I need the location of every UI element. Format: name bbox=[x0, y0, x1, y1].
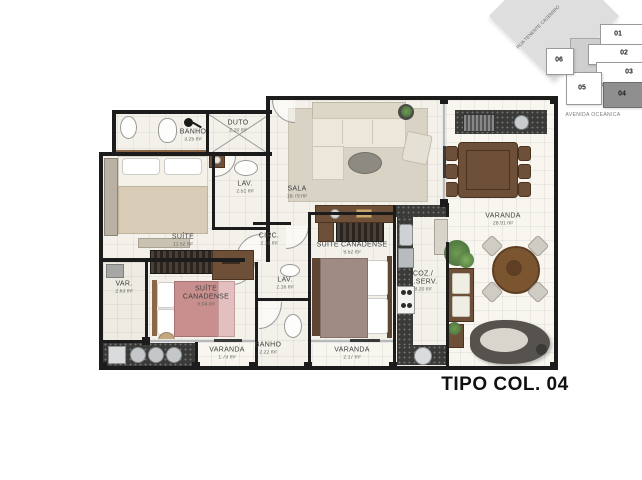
coffee-table bbox=[348, 152, 382, 174]
varanda-bench bbox=[448, 268, 474, 322]
room-label-suite-canadense-left: SUÍTE CANADENSE9.04 m² bbox=[180, 286, 232, 309]
wall bbox=[212, 156, 215, 230]
lav-sink bbox=[234, 160, 258, 176]
keyplan-unit-06-label: 06 bbox=[555, 57, 563, 64]
sofa-seat bbox=[312, 118, 406, 148]
wall bbox=[99, 258, 245, 262]
wall bbox=[99, 366, 558, 370]
canadense-center-bed bbox=[312, 256, 392, 338]
wall bbox=[145, 262, 148, 342]
ac-unit bbox=[106, 264, 124, 278]
room-label-varanda2: VARANDA2.17 m² bbox=[334, 347, 369, 362]
room-label-banho2: BANHO2.22 m² bbox=[255, 342, 281, 357]
column bbox=[440, 199, 448, 207]
room-label-banho1: BANHO3.25 m² bbox=[180, 129, 206, 144]
column bbox=[550, 362, 558, 370]
wall bbox=[253, 222, 291, 225]
kitchen-sink bbox=[399, 224, 413, 246]
wall bbox=[308, 212, 396, 215]
keyplan-unit-03 bbox=[596, 62, 642, 84]
column bbox=[99, 362, 107, 370]
wall bbox=[112, 152, 272, 156]
lav-sink bbox=[280, 264, 300, 277]
bathroom-sink bbox=[158, 118, 177, 143]
pillow bbox=[157, 282, 175, 308]
wall bbox=[266, 96, 558, 100]
duvet bbox=[320, 258, 368, 338]
cushion bbox=[452, 296, 470, 317]
room-label-varanda-grande: VARANDA28.91 m² bbox=[485, 213, 520, 228]
keyplan-unit-02-label: 02 bbox=[620, 50, 628, 57]
mask bbox=[97, 94, 269, 110]
toilet bbox=[284, 314, 302, 338]
column bbox=[304, 362, 312, 370]
dining-chair bbox=[445, 182, 458, 197]
dining-chair bbox=[445, 146, 458, 161]
dining-chair bbox=[445, 164, 458, 179]
floorplan-page: { "title": "TIPO COL. 04", "keyplan": { … bbox=[0, 0, 642, 480]
column bbox=[249, 362, 257, 370]
sofa-chaise bbox=[312, 146, 344, 180]
room-label-duto: DUTO2.10 m² bbox=[228, 120, 249, 135]
plant-icon bbox=[448, 322, 461, 335]
keyplan-unit-05-label: 05 bbox=[578, 85, 586, 92]
lounge-cushion bbox=[480, 328, 528, 352]
wall bbox=[554, 96, 558, 370]
room-label-suite-canadense-center: SUÍTE CANADENSE9.52 m² bbox=[317, 242, 388, 257]
column bbox=[389, 362, 397, 370]
room-label-circ: CIRC.2.13 m² bbox=[259, 233, 280, 248]
sliding-door-panel bbox=[214, 339, 242, 342]
wall bbox=[393, 205, 396, 366]
mask bbox=[95, 98, 112, 154]
plant-icon bbox=[401, 106, 412, 117]
counter-sink bbox=[130, 347, 146, 363]
round-table-center bbox=[506, 260, 522, 276]
wardrobe-slatted bbox=[336, 220, 384, 242]
blanket bbox=[118, 186, 208, 234]
keyplan-street-bottom: AVENIDA OCEÂNICA bbox=[551, 112, 634, 117]
toilet bbox=[120, 116, 137, 139]
grill-icon bbox=[463, 114, 495, 132]
room-label-suite: SUÍTE11.52 m² bbox=[171, 234, 194, 249]
room-label-varanda1: VARANDA1.73 m² bbox=[209, 347, 244, 362]
dining-chair bbox=[518, 164, 531, 179]
dining-chair bbox=[518, 146, 531, 161]
counter-square bbox=[108, 346, 126, 364]
wall bbox=[112, 110, 272, 114]
stool bbox=[318, 222, 334, 242]
washer bbox=[414, 347, 432, 365]
plant-icon bbox=[458, 252, 474, 268]
wall bbox=[112, 110, 116, 156]
wall bbox=[446, 242, 449, 366]
fridge bbox=[398, 248, 414, 268]
keyplan-unit-01-label: 01 bbox=[614, 31, 622, 38]
dresser bbox=[212, 250, 254, 280]
room-label-var: VAR.2.63 m² bbox=[114, 281, 134, 296]
cushion bbox=[452, 273, 470, 294]
bed-foot-runner bbox=[312, 258, 320, 336]
column bbox=[142, 337, 150, 345]
wall bbox=[308, 212, 311, 366]
wall bbox=[257, 298, 310, 301]
room-label-lav1: LAV.2.51 m² bbox=[235, 181, 255, 196]
keyplan-unit-03-label: 03 bbox=[625, 69, 633, 76]
lounge-side-table bbox=[536, 344, 547, 355]
room-label-coz: COZ./ A.SERV.8.20 m² bbox=[406, 271, 440, 294]
pillow bbox=[366, 298, 388, 334]
pillow bbox=[164, 158, 202, 175]
sliding-door-panel bbox=[443, 146, 446, 178]
keyplan: RUA TENENTE CASEMIRO 01 02 03 04 05 06 A… bbox=[516, 0, 642, 128]
pillow bbox=[122, 158, 160, 175]
wall bbox=[99, 340, 148, 343]
dining-chair bbox=[518, 182, 531, 197]
room-label-sala: SALA18.79 m² bbox=[285, 186, 309, 201]
keyplan-unit-04-label: 04 bbox=[618, 91, 626, 98]
counter-sink bbox=[148, 347, 164, 363]
dining-table-inlay bbox=[466, 150, 510, 190]
sliding-door-panel bbox=[350, 339, 380, 342]
pillow bbox=[366, 260, 388, 296]
counter-sink bbox=[166, 347, 182, 363]
column bbox=[440, 96, 448, 104]
wall bbox=[206, 112, 209, 154]
column bbox=[192, 362, 200, 370]
room-label-lav2: LAV.2.16 m² bbox=[275, 277, 295, 292]
wall bbox=[212, 227, 270, 230]
wardrobe-slatted bbox=[150, 250, 214, 274]
plan-title: TIPO COL. 04 bbox=[440, 374, 570, 396]
kitchen-counter bbox=[396, 205, 446, 217]
suite-bed bbox=[116, 150, 208, 234]
